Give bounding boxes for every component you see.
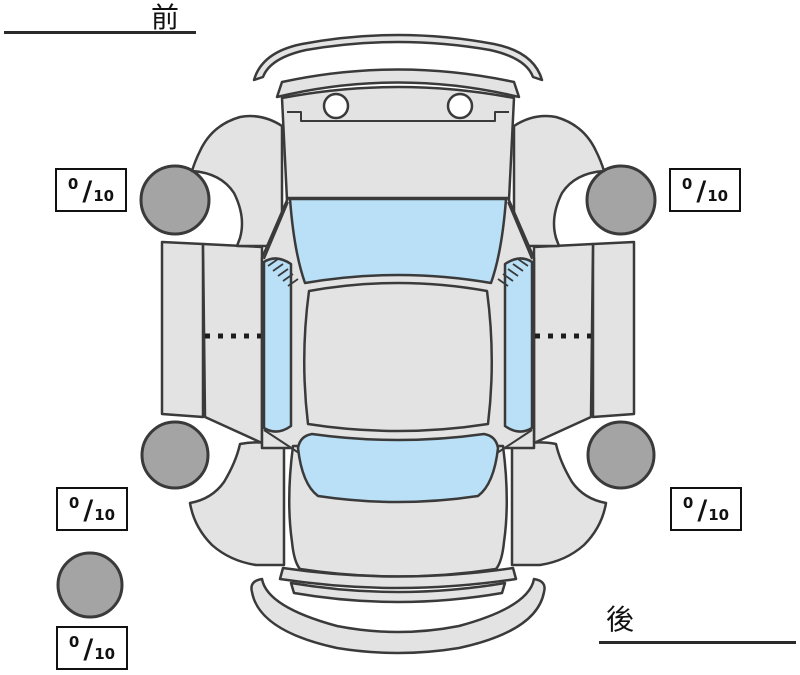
tread-value: 0 [683,494,693,512]
fender-front-right [514,116,604,246]
hood-circle-left [324,94,348,118]
hood-circle-right [448,94,472,118]
tread-value: 0 [68,175,78,193]
rear-window [298,434,498,502]
tread-box-spare: 0/10 [56,626,128,670]
tread-box-front-left: 0/10 [55,168,127,212]
tire-front-right [587,166,655,234]
tire-spare [58,553,122,617]
door-right [534,244,593,443]
door-left [203,244,262,443]
front-label: 前 [151,4,179,32]
tread-slash: / [696,178,706,205]
tread-max: 10 [707,187,728,205]
tread-max: 10 [94,645,115,663]
tire-rear-left [142,422,208,488]
tread-max: 10 [93,187,114,205]
tread-slash: / [83,497,93,524]
windshield [290,199,506,283]
tread-max: 10 [94,506,115,524]
vehicle-condition-diagram: 前 後 0/10 0/10 0/10 0/10 0/10 [0,0,800,675]
tread-box-rear-left: 0/10 [56,487,128,531]
tread-max: 10 [708,506,729,524]
sill-right [593,242,634,417]
tire-front-left [141,166,209,234]
side-window-right [505,258,532,431]
tread-box-front-right: 0/10 [669,168,741,212]
tread-value: 0 [682,175,692,193]
tread-slash: / [83,636,93,663]
tread-slash: / [697,497,707,524]
front-label-underline [4,31,196,34]
rear-label-underline [599,641,796,644]
side-window-left [264,258,291,431]
tread-value: 0 [69,633,79,651]
tread-value: 0 [69,494,79,512]
hood-panel [282,87,514,200]
sill-left [162,242,203,417]
roof-panel [304,283,492,431]
fender-front-left [192,116,282,246]
tread-slash: / [82,178,92,205]
rear-label: 後 [606,606,634,634]
car-top-view-drawing [0,0,800,675]
tire-rear-right [588,422,654,488]
tread-box-rear-right: 0/10 [670,487,742,531]
